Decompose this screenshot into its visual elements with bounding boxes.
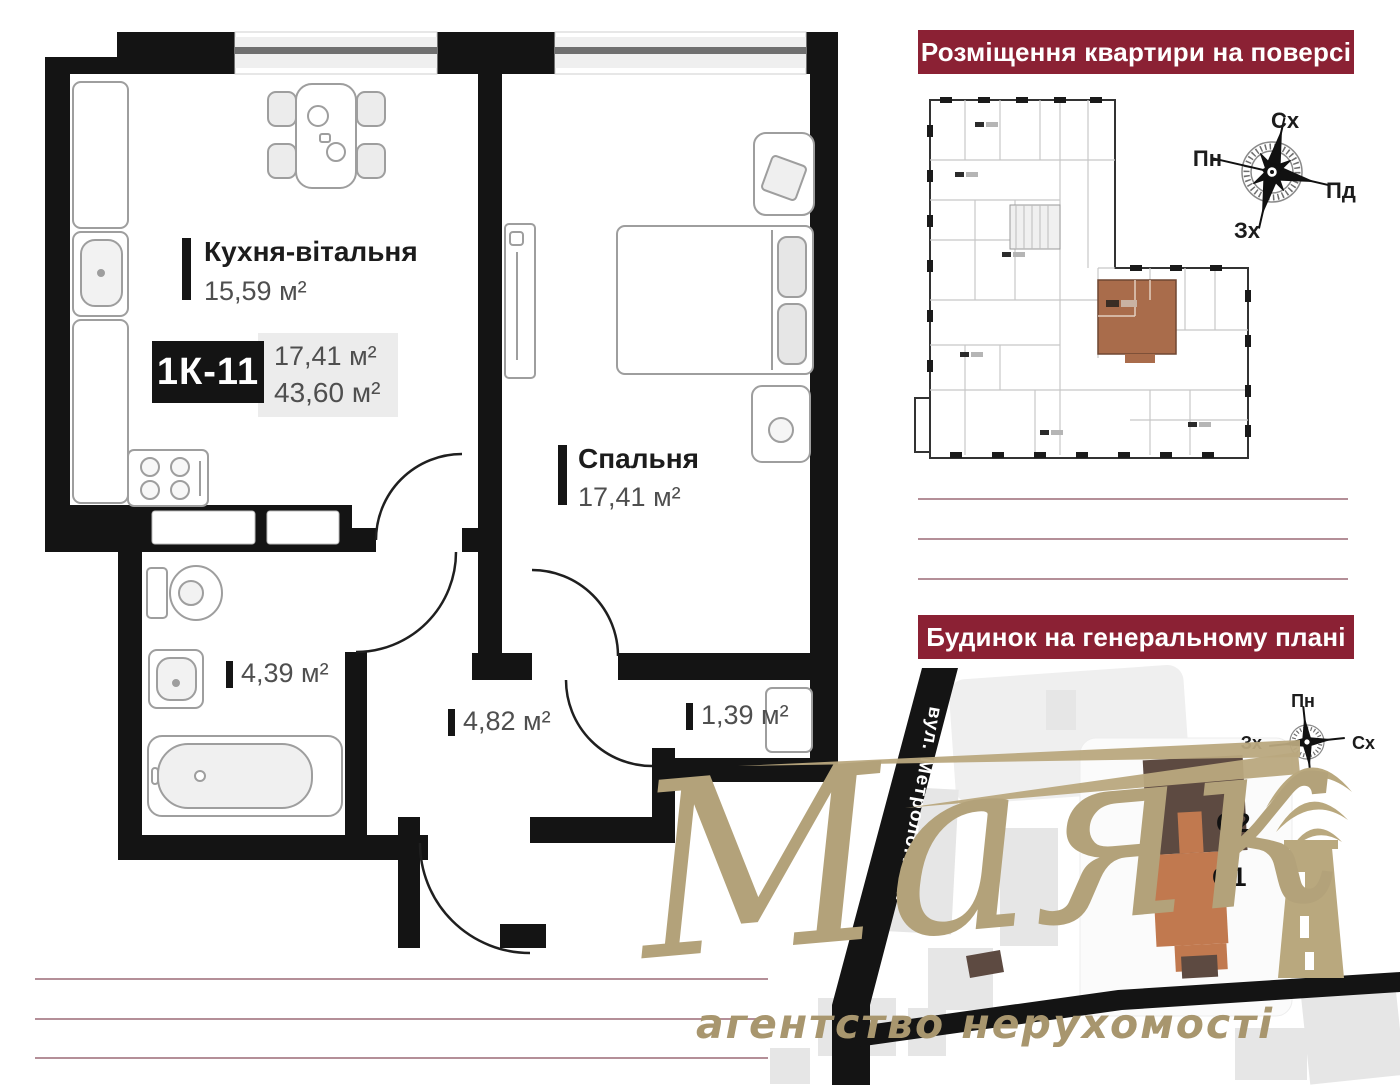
compass-label-top: Сх (1271, 108, 1300, 133)
compass-label-bottom: Зх (1234, 218, 1261, 243)
kitchen-room-area: 15,59 м² (204, 276, 307, 307)
bedroom-label-bar (558, 445, 567, 505)
building-label-c2: С2 (1216, 808, 1251, 838)
bed-symbol (617, 226, 813, 374)
stairwell-symbol (1010, 205, 1060, 249)
site-plan-header: Будинок на генеральному плані (918, 615, 1354, 659)
unit-living-area: 17,41 м² (274, 341, 377, 372)
bedroom-room-area: 17,41 м² (578, 482, 681, 513)
toilet-symbol (147, 566, 222, 620)
armchair-symbol (754, 133, 814, 215)
kitchen-door-arc (376, 454, 462, 540)
unit-code-badge: 1К-11 (152, 341, 264, 403)
sink-symbol (149, 650, 203, 708)
nightstand-symbol (752, 386, 810, 462)
closet-room-area: 1,39 м² (701, 700, 789, 731)
dining-table-symbol (268, 84, 385, 188)
floor-overview-header: Розміщення квартири на поверсі (918, 30, 1354, 74)
hallway-label-bar (448, 709, 455, 736)
kitchen-label-bar (182, 238, 191, 300)
kitchen-counter-symbol (73, 82, 128, 503)
site-compass-label-left: Зх (1241, 733, 1262, 753)
divider-line (918, 538, 1348, 540)
closet-label-bar (686, 703, 693, 730)
transom-window-1 (152, 511, 255, 544)
wardrobe-symbol (505, 224, 535, 378)
bedroom-room-title: Спальня (578, 443, 699, 475)
highlighted-unit (1098, 280, 1176, 363)
divider-line (918, 578, 1348, 580)
bedroom-door-arc (532, 570, 618, 656)
divider-line (918, 498, 1348, 500)
site-compass-label-top: Пн (1291, 691, 1315, 711)
kitchen-window (235, 32, 437, 74)
kitchen-room-title: Кухня-вітальня (204, 236, 418, 268)
floor-overview-plan: Сх Пн Пд Зх (890, 88, 1370, 488)
apartment-flyer-page: { "plan": { "kitchen": {"name": "Кухня-в… (0, 0, 1400, 1085)
building-label-c1: С1 (1212, 862, 1247, 892)
compass-rose-icon: Сх Пн Пд Зх (1193, 103, 1356, 243)
site-compass-label-right: Сх (1352, 733, 1375, 753)
bathroom-door-arc (356, 552, 456, 652)
bathroom-label-bar (226, 661, 233, 688)
bathtub-symbol (148, 736, 342, 816)
transom-window-2 (267, 511, 339, 544)
unit-total-area: 43,60 м² (274, 377, 380, 409)
compass-label-right: Пд (1326, 178, 1356, 203)
compass-label-left: Пн (1193, 146, 1222, 171)
hallway-room-area: 4,82 м² (463, 706, 551, 737)
stove-symbol (128, 450, 208, 506)
bathroom-room-area: 4,39 м² (241, 658, 329, 689)
bedroom-window (555, 32, 806, 74)
